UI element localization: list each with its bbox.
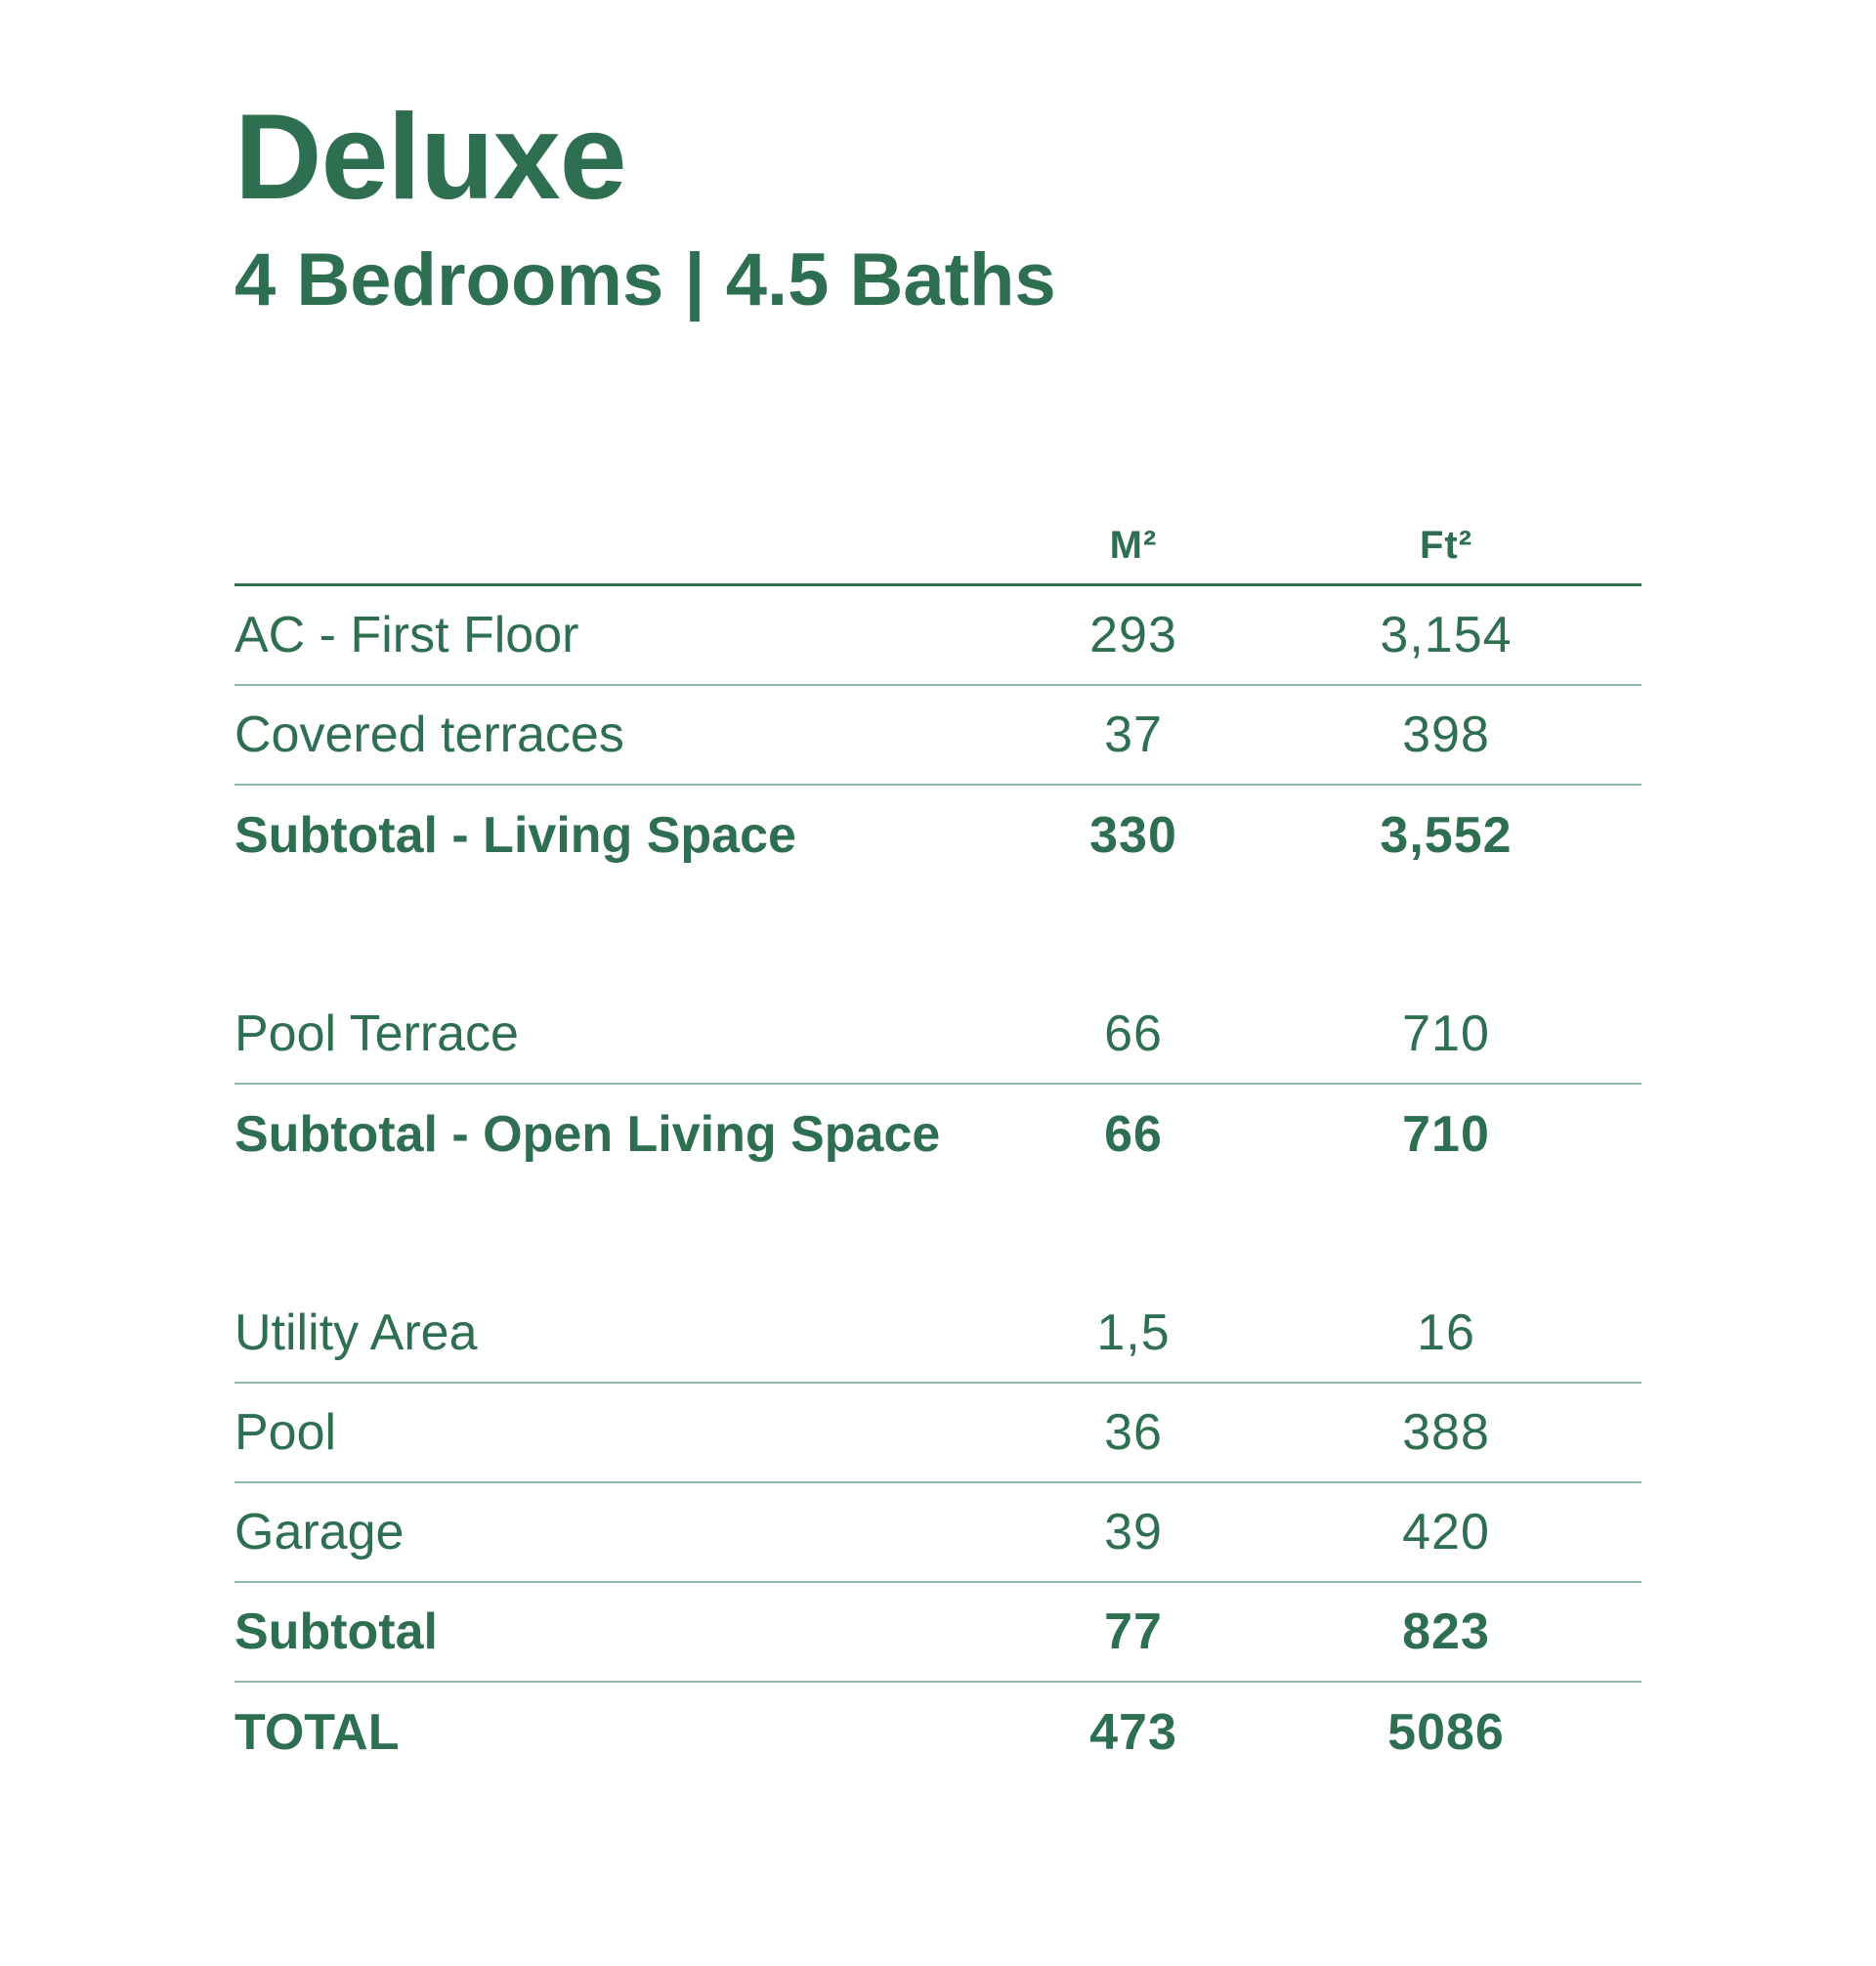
page-title: Deluxe — [234, 90, 1641, 226]
row-m2-value: 473 — [1036, 1703, 1231, 1762]
row-m2-value: 36 — [1036, 1403, 1231, 1462]
row-ft2-value: 3,552 — [1290, 806, 1602, 865]
row-m2-value: 330 — [1036, 806, 1231, 865]
row-ft2-value: 398 — [1290, 705, 1602, 764]
row-ft2-value: 16 — [1290, 1304, 1602, 1362]
table-row: Subtotal - Living Space 330 3,552 — [234, 786, 1641, 885]
page: Deluxe 4 Bedrooms | 4.5 Baths M² Ft² AC … — [234, 90, 1641, 1782]
table-header-row: M² Ft² — [234, 506, 1641, 586]
row-label: Pool — [234, 1403, 1036, 1462]
page-subtitle: 4 Bedrooms | 4.5 Baths — [234, 239, 1641, 321]
table-row: TOTAL 473 5086 — [234, 1683, 1641, 1782]
row-m2-value: 39 — [1036, 1503, 1231, 1561]
row-m2-value: 66 — [1036, 1004, 1231, 1063]
table-row: Subtotal - Open Living Space 66 710 — [234, 1085, 1641, 1184]
table-row: AC - First Floor 293 3,154 — [234, 586, 1641, 686]
row-ft2-value: 5086 — [1290, 1703, 1602, 1762]
table-row: Pool 36 388 — [234, 1384, 1641, 1483]
table-section-other-areas: Utility Area 1,5 16 Pool 36 388 Garage 3… — [234, 1284, 1641, 1782]
row-label: Pool Terrace — [234, 1004, 1036, 1063]
row-label: Subtotal — [234, 1603, 1036, 1661]
row-ft2-value: 823 — [1290, 1603, 1602, 1661]
row-m2-value: 1,5 — [1036, 1304, 1231, 1362]
table-row: Covered terraces 37 398 — [234, 686, 1641, 786]
table-row: Pool Terrace 66 710 — [234, 985, 1641, 1085]
table-row: Garage 39 420 — [234, 1483, 1641, 1583]
row-ft2-value: 3,154 — [1290, 606, 1602, 664]
row-label: TOTAL — [234, 1703, 1036, 1762]
row-m2-value: 37 — [1036, 705, 1231, 764]
row-ft2-value: 710 — [1290, 1105, 1602, 1164]
table-section-open-living-space: Pool Terrace 66 710 Subtotal - Open Livi… — [234, 985, 1641, 1184]
table-row: Utility Area 1,5 16 — [234, 1284, 1641, 1384]
table-section-living-space: AC - First Floor 293 3,154 Covered terra… — [234, 586, 1641, 885]
row-label: Covered terraces — [234, 705, 1036, 764]
row-label: Subtotal - Living Space — [234, 806, 1036, 865]
row-label: Utility Area — [234, 1304, 1036, 1362]
column-header-m2: M² — [1036, 524, 1231, 568]
row-label: Garage — [234, 1503, 1036, 1561]
row-label: Subtotal - Open Living Space — [234, 1105, 1036, 1164]
row-m2-value: 293 — [1036, 606, 1231, 664]
row-label: AC - First Floor — [234, 606, 1036, 664]
column-header-ft2: Ft² — [1290, 524, 1602, 568]
row-ft2-value: 420 — [1290, 1503, 1602, 1561]
row-ft2-value: 388 — [1290, 1403, 1602, 1462]
table-body: AC - First Floor 293 3,154 Covered terra… — [234, 586, 1641, 1782]
row-m2-value: 66 — [1036, 1105, 1231, 1164]
row-ft2-value: 710 — [1290, 1004, 1602, 1063]
table-row: Subtotal 77 823 — [234, 1583, 1641, 1683]
area-table: M² Ft² AC - First Floor 293 3,154 Covere… — [234, 506, 1641, 1782]
row-m2-value: 77 — [1036, 1603, 1231, 1661]
